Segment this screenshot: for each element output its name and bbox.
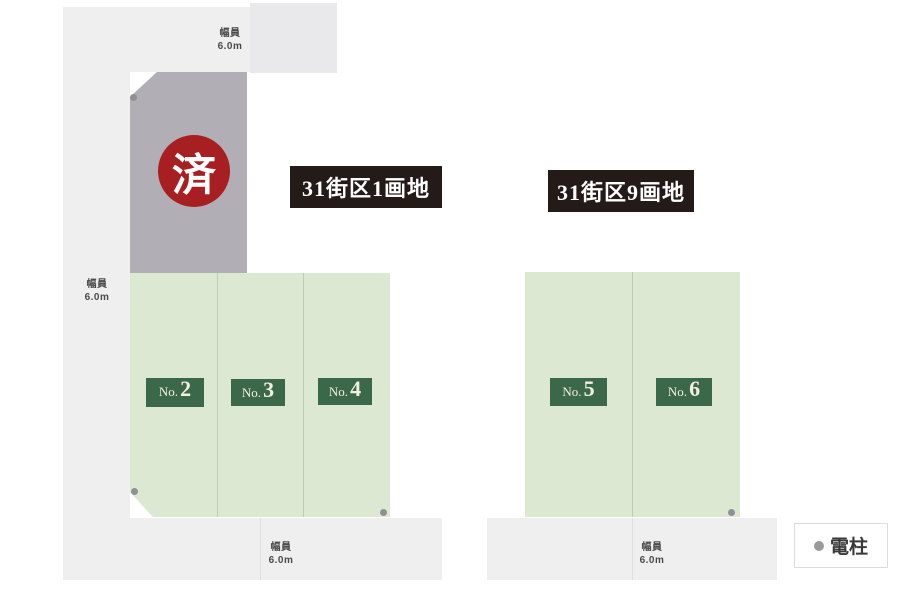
road-width-text: 幅員 [220, 28, 241, 39]
road-top-right-segment [250, 3, 337, 73]
block-label-right: 31街区9画地 [548, 170, 694, 212]
road-width-value: 6.0m [218, 41, 243, 52]
lot-number-prefix: No. [242, 385, 261, 401]
road-width-value: 6.0m [640, 555, 665, 566]
road-width-label-left: 幅員 6.0m [69, 278, 125, 304]
lot-number: 2 [180, 378, 191, 400]
lot-boundary-line [217, 273, 218, 517]
utility-pole-dot [380, 509, 387, 516]
road-width-value: 6.0m [85, 292, 110, 303]
lot-number-prefix: No. [668, 384, 687, 400]
road-width-value: 6.0m [269, 555, 294, 566]
lot-number: 5 [584, 378, 595, 400]
lot-tag-no5: No. 5 [550, 378, 607, 406]
lot-boundary-line [632, 272, 633, 517]
lot-number-prefix: No. [329, 384, 348, 400]
block-label-left: 31街区1画地 [290, 166, 442, 208]
lot-tag-no2: No. 2 [146, 378, 204, 407]
block-label-text: 31街区1画地 [302, 171, 430, 203]
sold-badge: 済 [158, 135, 230, 207]
road-width-text: 幅員 [87, 279, 108, 290]
road-width-label-bottom-right: 幅員 6.0m [624, 541, 680, 567]
lot-number-prefix: No. [562, 384, 581, 400]
lot-number: 3 [263, 379, 274, 401]
lot-tag-no3: No. 3 [231, 379, 285, 406]
lot-layout-diagram: 幅員 6.0m 幅員 6.0m 幅員 6.0m 幅員 6.0m 済 31街区1画… [0, 0, 900, 600]
lot-number-prefix: No. [159, 384, 178, 400]
lot-number: 6 [689, 378, 700, 400]
lot-boundary-line [303, 273, 304, 517]
sold-badge-text: 済 [172, 139, 216, 203]
lot-tag-no6: No. 6 [656, 378, 712, 406]
utility-pole-dot [728, 509, 735, 516]
lot-tag-no4: No. 4 [318, 378, 372, 405]
road-width-text: 幅員 [271, 542, 292, 553]
lot-number: 4 [350, 378, 361, 400]
legend-label: 電柱 [830, 532, 868, 559]
legend-utility-pole: 電柱 [794, 523, 888, 568]
road-width-text: 幅員 [642, 542, 663, 553]
utility-pole-dot [130, 94, 137, 101]
block-label-text: 31街区9画地 [557, 175, 685, 207]
road-width-label-bottom-left: 幅員 6.0m [253, 541, 309, 567]
road-width-label-top: 幅員 6.0m [202, 27, 258, 53]
utility-pole-legend-icon [814, 541, 824, 551]
utility-pole-dot [131, 488, 138, 495]
